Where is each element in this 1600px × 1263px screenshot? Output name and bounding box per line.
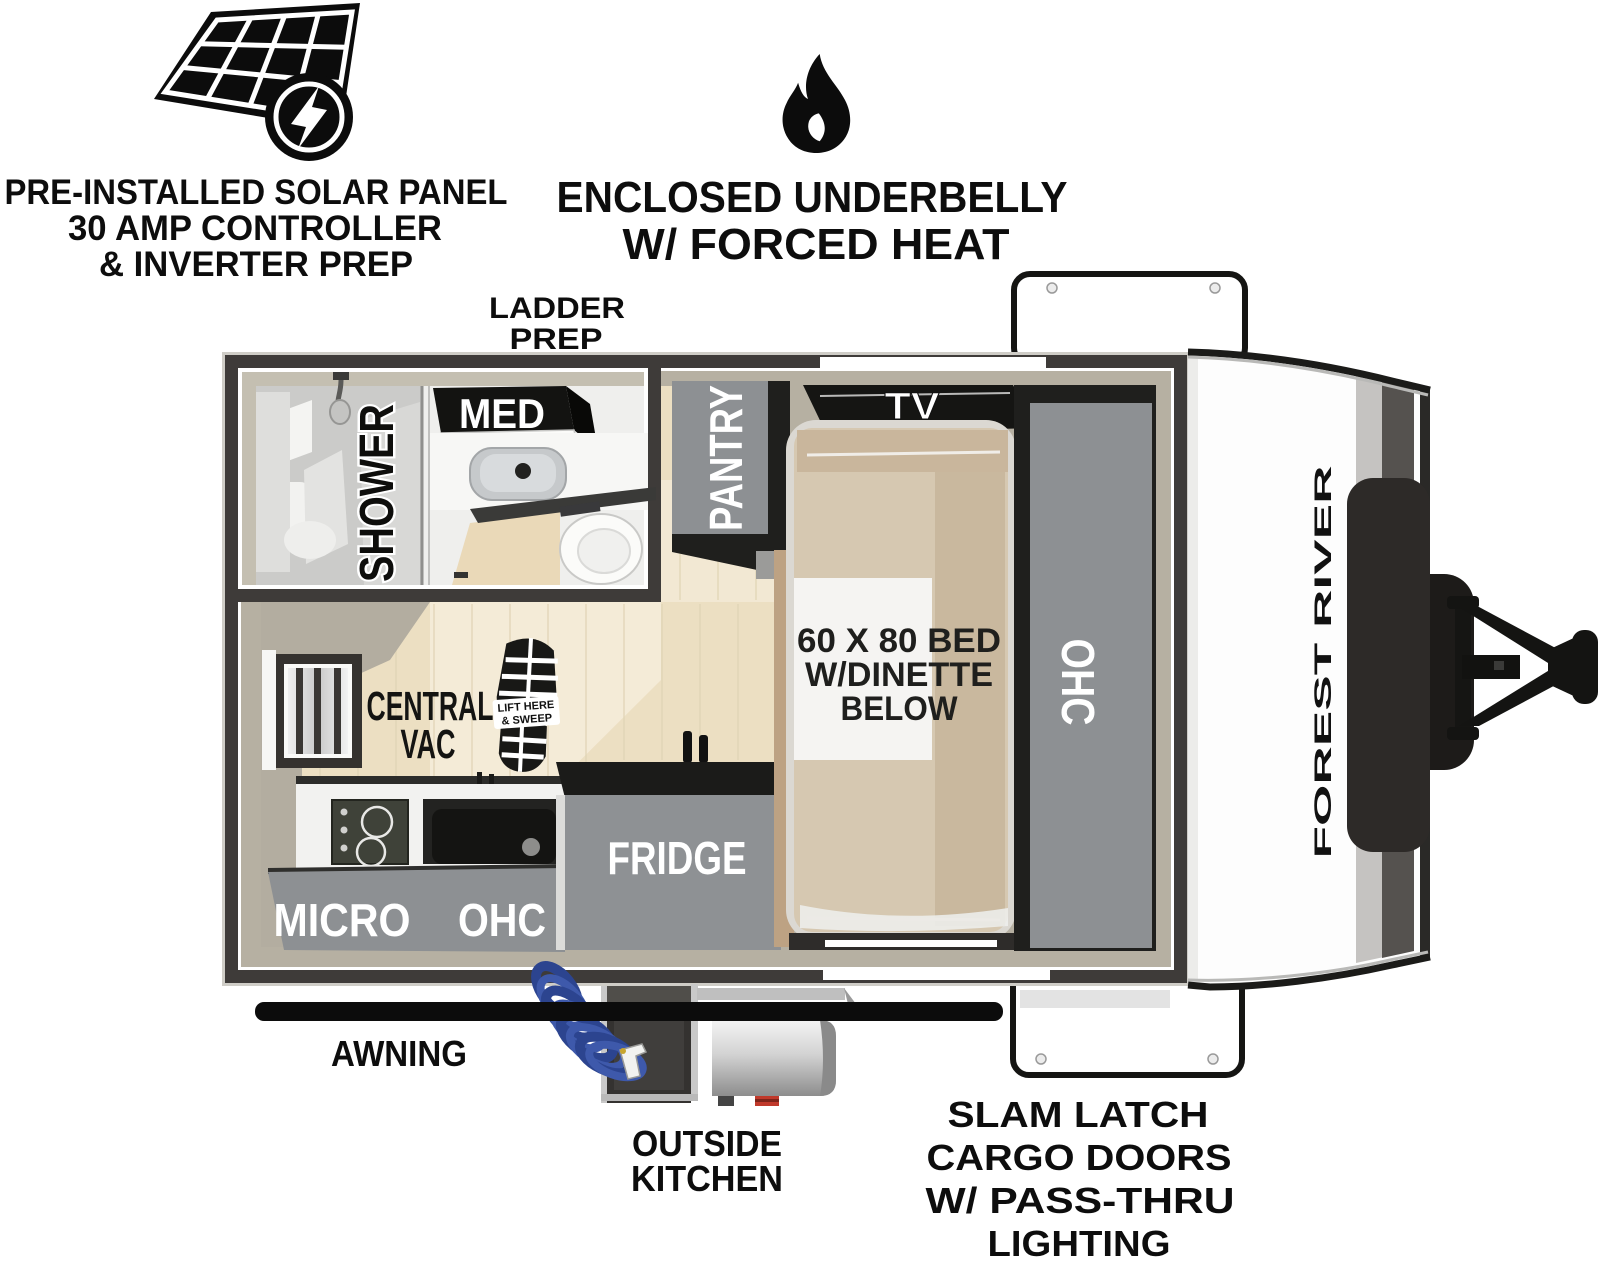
svg-text:FOREST RIVER: FOREST RIVER (1310, 466, 1337, 859)
svg-text:PRE-INSTALLED SOLAR PANEL: PRE-INSTALLED SOLAR PANEL (5, 173, 508, 212)
svg-text:PANTRY: PANTRY (700, 385, 752, 531)
svg-text:VAC: VAC (401, 721, 456, 767)
svg-text:PREP: PREP (510, 323, 603, 356)
svg-text:LIGHTING: LIGHTING (988, 1223, 1171, 1263)
svg-text:AWNING: AWNING (331, 1033, 467, 1074)
svg-text:OHC: OHC (1052, 639, 1104, 726)
svg-text:W/ PASS-THRU: W/ PASS-THRU (926, 1180, 1235, 1221)
svg-text:KITCHEN: KITCHEN (631, 1158, 783, 1199)
svg-text:BELOW: BELOW (841, 690, 959, 728)
svg-text:60 X 80 BED: 60 X 80 BED (797, 622, 1001, 660)
svg-text:& INVERTER PREP: & INVERTER PREP (99, 245, 413, 284)
svg-text:W/DINETTE: W/DINETTE (805, 656, 993, 694)
svg-text:30 AMP CONTROLLER: 30 AMP CONTROLLER (68, 209, 442, 248)
svg-text:W/ FORCED HEAT: W/ FORCED HEAT (623, 220, 1010, 269)
svg-text:OHC: OHC (458, 894, 546, 946)
svg-text:MED: MED (459, 390, 545, 437)
svg-text:MICRO: MICRO (274, 894, 411, 946)
svg-text:LADDER: LADDER (489, 292, 625, 325)
svg-text:SHOWER: SHOWER (351, 404, 404, 582)
svg-text:FRIDGE: FRIDGE (608, 832, 747, 884)
svg-text:SLAM LATCH: SLAM LATCH (948, 1094, 1209, 1135)
svg-text:CARGO DOORS: CARGO DOORS (927, 1137, 1232, 1178)
svg-text:ENCLOSED UNDERBELLY: ENCLOSED UNDERBELLY (557, 173, 1068, 222)
